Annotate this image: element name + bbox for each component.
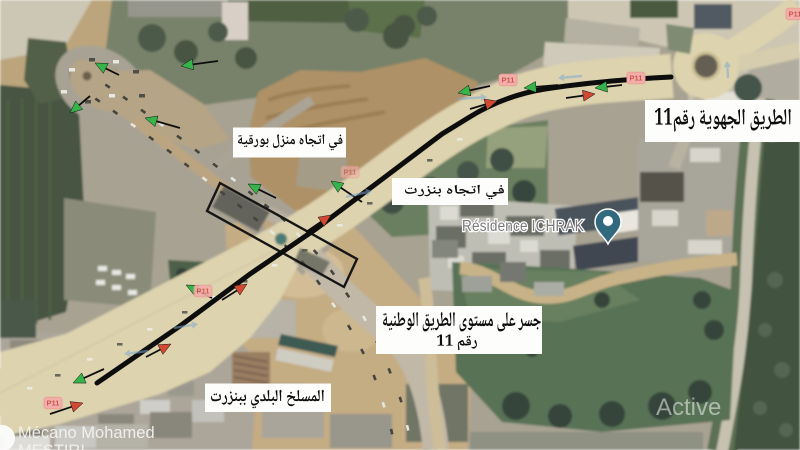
svg-text:P11: P11 bbox=[630, 74, 643, 83]
svg-text:P11: P11 bbox=[789, 10, 800, 19]
svg-text:P11: P11 bbox=[502, 76, 515, 85]
svg-text:Mécano Mohamed: Mécano Mohamed bbox=[18, 424, 155, 442]
svg-text:P11: P11 bbox=[344, 168, 357, 177]
svg-text:Résidence ICHRAK: Résidence ICHRAK bbox=[462, 218, 584, 235]
svg-text:P11: P11 bbox=[197, 287, 210, 296]
svg-text:MESTIRI: MESTIRI bbox=[18, 442, 85, 450]
svg-text:P11: P11 bbox=[47, 399, 60, 408]
svg-text:Active: Active bbox=[656, 394, 721, 421]
